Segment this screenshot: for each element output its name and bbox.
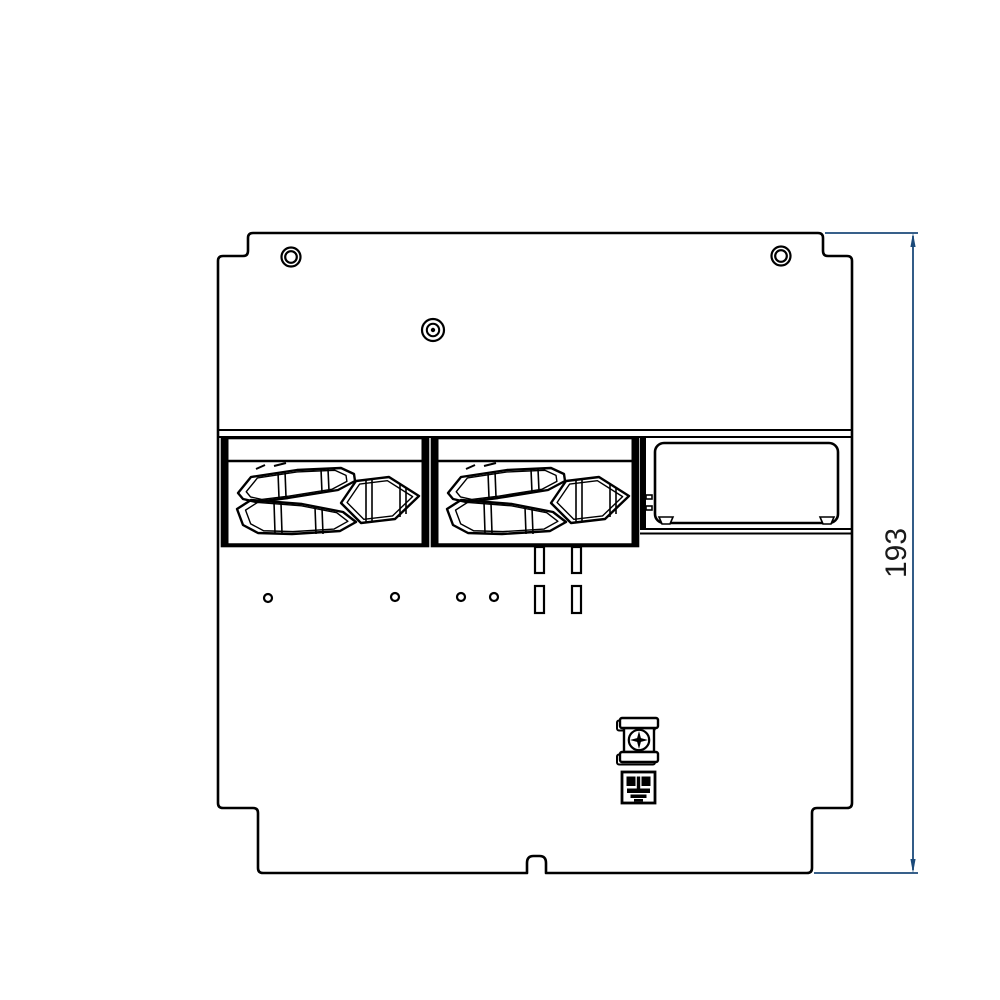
earth-symbol-icon — [622, 772, 655, 803]
cable-entry-module-right — [432, 438, 638, 546]
cutout-foot-left — [659, 517, 673, 524]
right-rail-section — [640, 438, 852, 534]
dimension-value: 193 — [880, 528, 913, 578]
dimension-arrow-up-icon — [910, 233, 915, 247]
cutout-foot-right — [820, 517, 834, 524]
rectangular-cutout — [655, 443, 838, 523]
cable-entry-module-left — [222, 438, 428, 546]
dimension-arrow-down-icon — [910, 859, 915, 873]
technical-drawing-canvas: 193 — [0, 0, 1000, 1000]
mounting-plate-drawing: 193 — [0, 0, 1000, 1000]
ground-screw-terminal-icon — [617, 718, 658, 765]
